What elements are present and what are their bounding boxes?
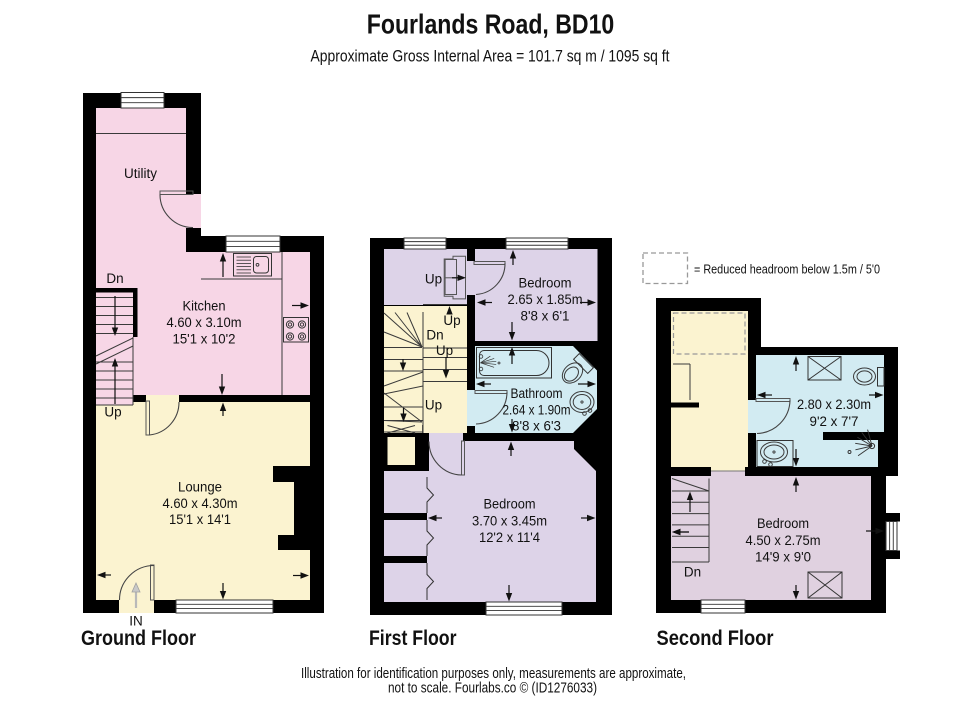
svg-text:Bedroom: Bedroom xyxy=(519,276,572,291)
svg-text:Up: Up xyxy=(443,313,460,328)
svg-text:Up: Up xyxy=(436,343,453,358)
svg-text:First Floor: First Floor xyxy=(369,627,457,650)
svg-text:8'8 x 6'1: 8'8 x 6'1 xyxy=(521,309,570,324)
svg-text:Bedroom: Bedroom xyxy=(757,516,809,531)
svg-text:2.65 x 1.85m: 2.65 x 1.85m xyxy=(508,292,583,307)
svg-text:Second Floor: Second Floor xyxy=(657,627,774,650)
svg-text:not to scale. Fourlabs.co © (I: not to scale. Fourlabs.co © (ID1276033) xyxy=(388,681,597,697)
svg-text:4.50 x 2.75m: 4.50 x 2.75m xyxy=(746,533,821,548)
svg-text:14'9 x 9'0: 14'9 x 9'0 xyxy=(755,550,811,565)
svg-text:Dn: Dn xyxy=(106,271,123,286)
svg-text:8'8 x 6'3: 8'8 x 6'3 xyxy=(512,419,561,434)
svg-text:Approximate Gross Internal Are: Approximate Gross Internal Area = 101.7 … xyxy=(311,47,670,66)
svg-text:Dn: Dn xyxy=(684,565,701,580)
svg-text:4.60 x 4.30m: 4.60 x 4.30m xyxy=(163,496,238,511)
svg-text:Up: Up xyxy=(425,272,442,287)
svg-text:Bathroom: Bathroom xyxy=(511,386,563,401)
svg-text:Dn: Dn xyxy=(426,328,443,343)
svg-text:Kitchen: Kitchen xyxy=(183,299,226,314)
svg-text:Fourlands Road, BD10: Fourlands Road, BD10 xyxy=(367,9,615,40)
svg-text:12'2 x 11'4: 12'2 x 11'4 xyxy=(479,530,540,545)
svg-text:3.70 x 3.45m: 3.70 x 3.45m xyxy=(472,514,547,529)
svg-text:15'1 x 10'2: 15'1 x 10'2 xyxy=(173,332,236,347)
svg-text:4.60 x 3.10m: 4.60 x 3.10m xyxy=(167,315,242,330)
svg-text:Up: Up xyxy=(425,398,442,413)
svg-text:Lounge: Lounge xyxy=(178,480,222,495)
svg-text:2.80 x 2.30m: 2.80 x 2.30m xyxy=(797,397,871,412)
svg-text:= Reduced headroom below 1.5m: = Reduced headroom below 1.5m / 5'0 xyxy=(694,263,880,277)
svg-text:Up: Up xyxy=(104,405,121,420)
svg-text:Ground Floor: Ground Floor xyxy=(81,627,196,650)
svg-text:15'1 x 14'1: 15'1 x 14'1 xyxy=(169,512,231,527)
svg-text:Utility: Utility xyxy=(124,166,157,181)
svg-text:2.64 x 1.90m: 2.64 x 1.90m xyxy=(503,403,571,418)
svg-text:9'2 x 7'7: 9'2 x 7'7 xyxy=(810,414,859,429)
svg-text:Bedroom: Bedroom xyxy=(484,497,536,512)
